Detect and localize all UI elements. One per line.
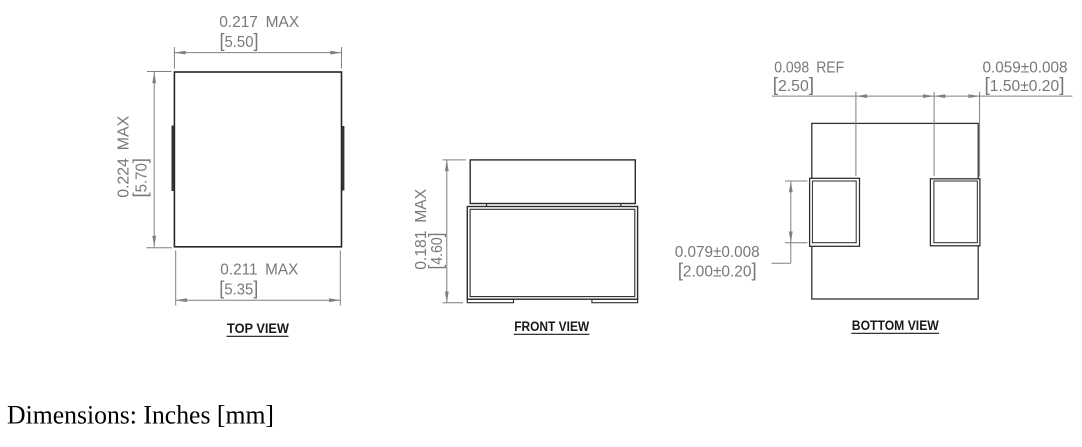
svg-text:0.079±0.008: 0.079±0.008 [675,244,760,261]
svg-text:[5.70]: [5.70] [130,158,152,198]
svg-text:0.224 MAX: 0.224 MAX [115,115,132,197]
svg-text:[5.35]: [5.35] [219,278,258,300]
svg-text:TOP VIEW: TOP VIEW [227,321,289,336]
svg-text:FRONT VIEW: FRONT VIEW [514,319,589,334]
svg-text:[1.50±0.20]: [1.50±0.20] [985,74,1065,96]
svg-text:[2.00±0.20]: [2.00±0.20] [678,260,757,282]
svg-text:0.181 MAX: 0.181 MAX [413,188,430,269]
svg-text:[4.60]: [4.60] [425,233,447,270]
svg-text:0.211 MAX: 0.211 MAX [220,261,298,278]
svg-text:0.059±0.008: 0.059±0.008 [983,60,1068,77]
svg-text:[2.50]: [2.50] [773,74,815,96]
svg-text:[5.50]: [5.50] [220,30,259,52]
svg-text:Dimensions: Inches [mm]: Dimensions: Inches [mm] [7,400,274,430]
svg-text:0.217 MAX: 0.217 MAX [219,14,299,31]
svg-text:BOTTOM VIEW: BOTTOM VIEW [852,318,939,333]
